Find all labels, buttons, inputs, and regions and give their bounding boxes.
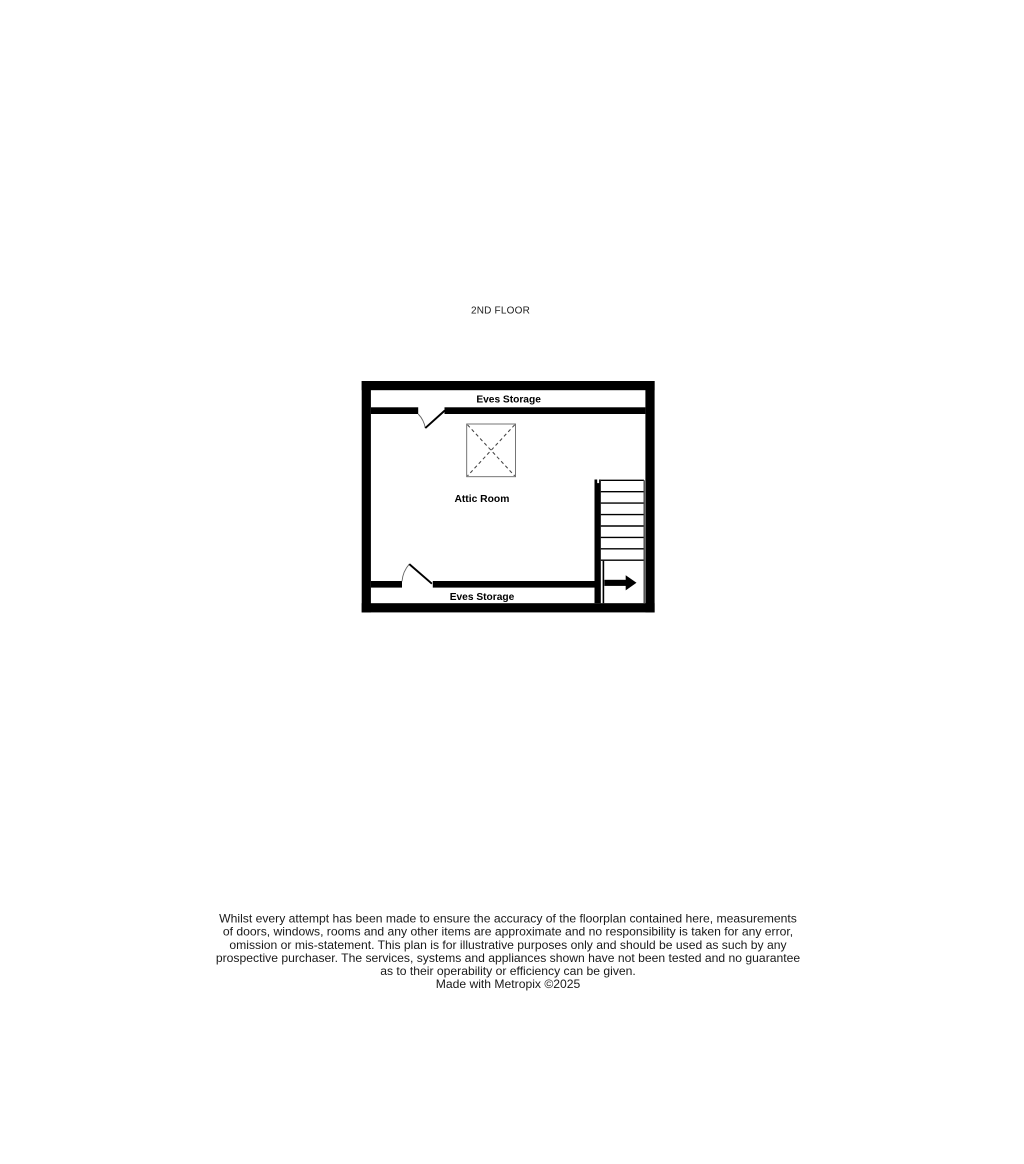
svg-text:of doors, windows, rooms and a: of doors, windows, rooms and any other i… [223,925,793,939]
svg-text:Whilst every attempt has been: Whilst every attempt has been made to en… [219,912,797,926]
svg-text:2ND FLOOR: 2ND FLOOR [471,306,530,317]
svg-text:Eves Storage: Eves Storage [450,592,515,603]
svg-text:as to their operability or eff: as to their operability or efficiency ca… [380,964,636,978]
svg-text:Attic Room: Attic Room [454,494,509,505]
svg-text:Eves Storage: Eves Storage [476,395,541,406]
svg-text:Made with Metropix ©2025: Made with Metropix ©2025 [436,977,581,991]
svg-text:omission or mis-statement. Thi: omission or mis-statement. This plan is … [229,938,787,952]
svg-text:prospective purchaser. The ser: prospective purchaser. The services, sys… [216,951,800,965]
